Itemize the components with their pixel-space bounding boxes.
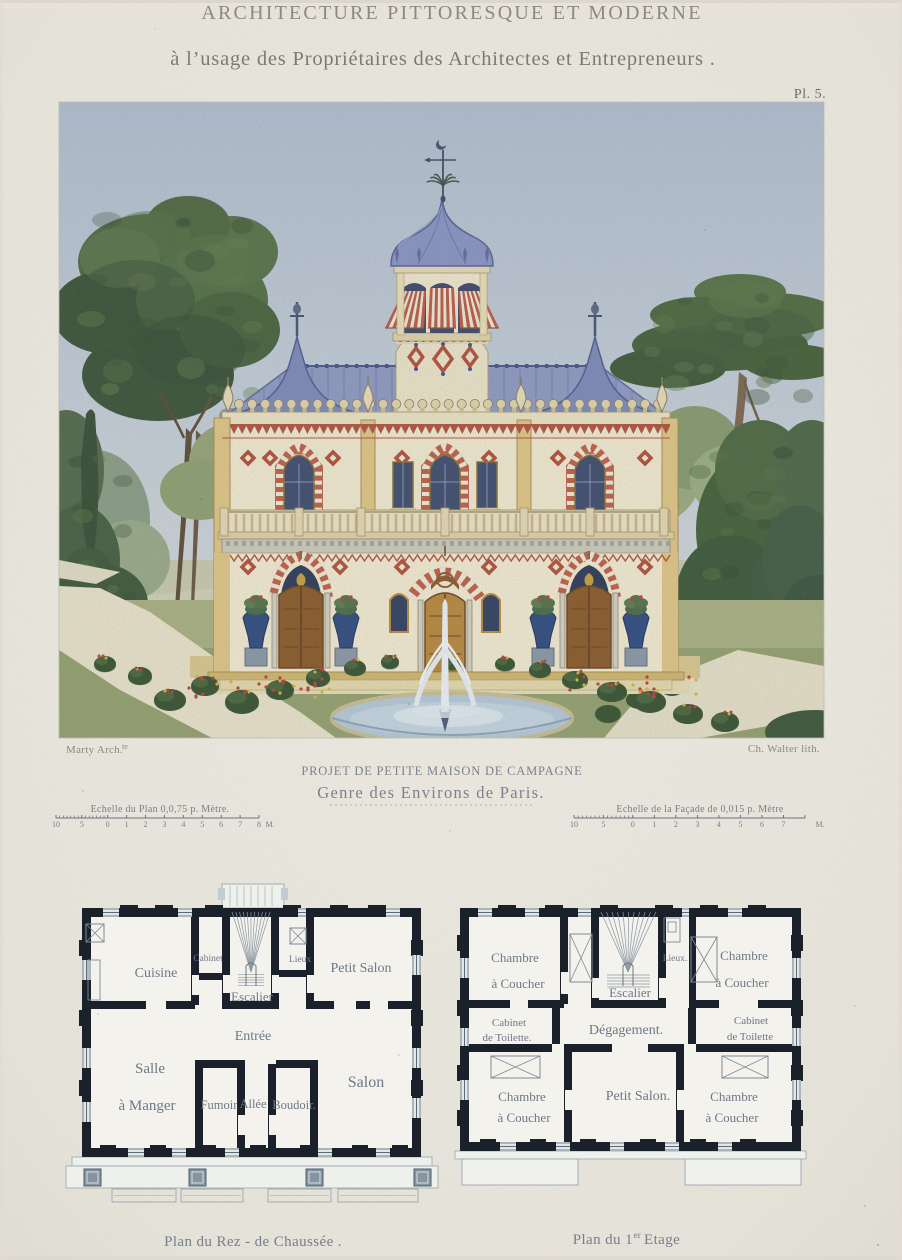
- svg-text:er: er: [634, 1231, 642, 1241]
- svg-text:0: 0: [106, 820, 110, 829]
- svg-text:Boudoir.: Boudoir.: [272, 1098, 315, 1112]
- svg-text:Cabinet: Cabinet: [492, 1017, 526, 1029]
- svg-text:3: 3: [695, 820, 699, 829]
- svg-text:Cabinet: Cabinet: [193, 954, 223, 964]
- svg-text:1: 1: [125, 820, 129, 829]
- svg-text:8: 8: [257, 820, 261, 829]
- svg-text:0: 0: [631, 820, 635, 829]
- svg-text:Fumoir: Fumoir: [201, 1098, 239, 1112]
- svg-text:Escalier: Escalier: [609, 985, 652, 1000]
- svg-text:de Toilette: de Toilette: [727, 1031, 773, 1043]
- svg-text:Escalier: Escalier: [231, 989, 274, 1004]
- svg-text:Allée: Allée: [239, 1097, 267, 1111]
- svg-text:Cuisine: Cuisine: [135, 966, 178, 981]
- svg-text:Chambre: Chambre: [720, 948, 768, 963]
- svg-text:2: 2: [144, 820, 148, 829]
- svg-text:Plan du 1: Plan du 1: [573, 1232, 633, 1248]
- svg-text:5: 5: [200, 820, 204, 829]
- svg-text:Echelle de la Façade de 0,015: Echelle de la Façade de 0,015 p. Mètre: [616, 804, 783, 815]
- svg-text:Lieux: Lieux: [289, 955, 311, 965]
- svg-text:6: 6: [219, 820, 223, 829]
- svg-text:Salle: Salle: [135, 1061, 165, 1077]
- svg-text:Salon: Salon: [348, 1074, 384, 1091]
- svg-text:à Coucher: à Coucher: [705, 1110, 759, 1125]
- svg-text:PROJET DE PETITE MAISON D: PROJET DE PETITE MAISON DE CAMPAGNE: [301, 764, 582, 778]
- svg-text:de Toilette.: de Toilette.: [482, 1032, 531, 1044]
- svg-text:7: 7: [238, 820, 242, 829]
- svg-text:7: 7: [781, 820, 785, 829]
- svg-text:Etage: Etage: [644, 1232, 680, 1248]
- svg-text:10: 10: [52, 820, 60, 829]
- svg-text:5: 5: [601, 820, 605, 829]
- svg-text:10: 10: [570, 820, 578, 829]
- svg-text:M.: M.: [265, 820, 274, 829]
- svg-text:4: 4: [181, 820, 185, 829]
- svg-text:Echelle du Plan 0,0,75 p. Mètr: Echelle du Plan 0,0,75 p. Mètre.: [91, 804, 230, 815]
- svg-text:Lieux.: Lieux.: [663, 954, 688, 964]
- svg-text:à Coucher: à Coucher: [715, 975, 769, 990]
- svg-text:6: 6: [760, 820, 764, 829]
- svg-text:4: 4: [717, 820, 721, 829]
- svg-text:5: 5: [738, 820, 742, 829]
- svg-text:à Coucher: à Coucher: [497, 1110, 551, 1125]
- svg-text:2: 2: [674, 820, 678, 829]
- svg-text:Plan du Rez - de Chaussée .: Plan du Rez - de Chaussée .: [164, 1234, 342, 1250]
- svg-text:Marty Arch.: Marty Arch.: [66, 744, 123, 756]
- svg-text:Ch. Walter lith.: Ch. Walter lith.: [748, 743, 820, 755]
- svg-text:5: 5: [80, 820, 84, 829]
- svg-text:3: 3: [162, 820, 166, 829]
- svg-text:Chambre: Chambre: [491, 950, 539, 965]
- svg-text:Dégagement.: Dégagement.: [589, 1023, 663, 1038]
- svg-text:Entrée: Entrée: [235, 1029, 272, 1044]
- svg-text:1: 1: [652, 820, 656, 829]
- svg-text:Cabinet: Cabinet: [734, 1015, 768, 1027]
- svg-text:Petit Salon.: Petit Salon.: [606, 1089, 671, 1104]
- svg-text:Genre des Environs de Pari: Genre des Environs de Paris.: [317, 783, 544, 802]
- svg-text:te: te: [122, 742, 128, 751]
- svg-text:Petit Salon: Petit Salon: [330, 961, 391, 976]
- svg-text:à Manger: à Manger: [118, 1098, 175, 1114]
- svg-text:M.: M.: [815, 820, 824, 829]
- svg-text:Chambre: Chambre: [710, 1089, 758, 1104]
- svg-text:Chambre: Chambre: [498, 1089, 546, 1104]
- svg-text:à Coucher: à Coucher: [491, 976, 545, 991]
